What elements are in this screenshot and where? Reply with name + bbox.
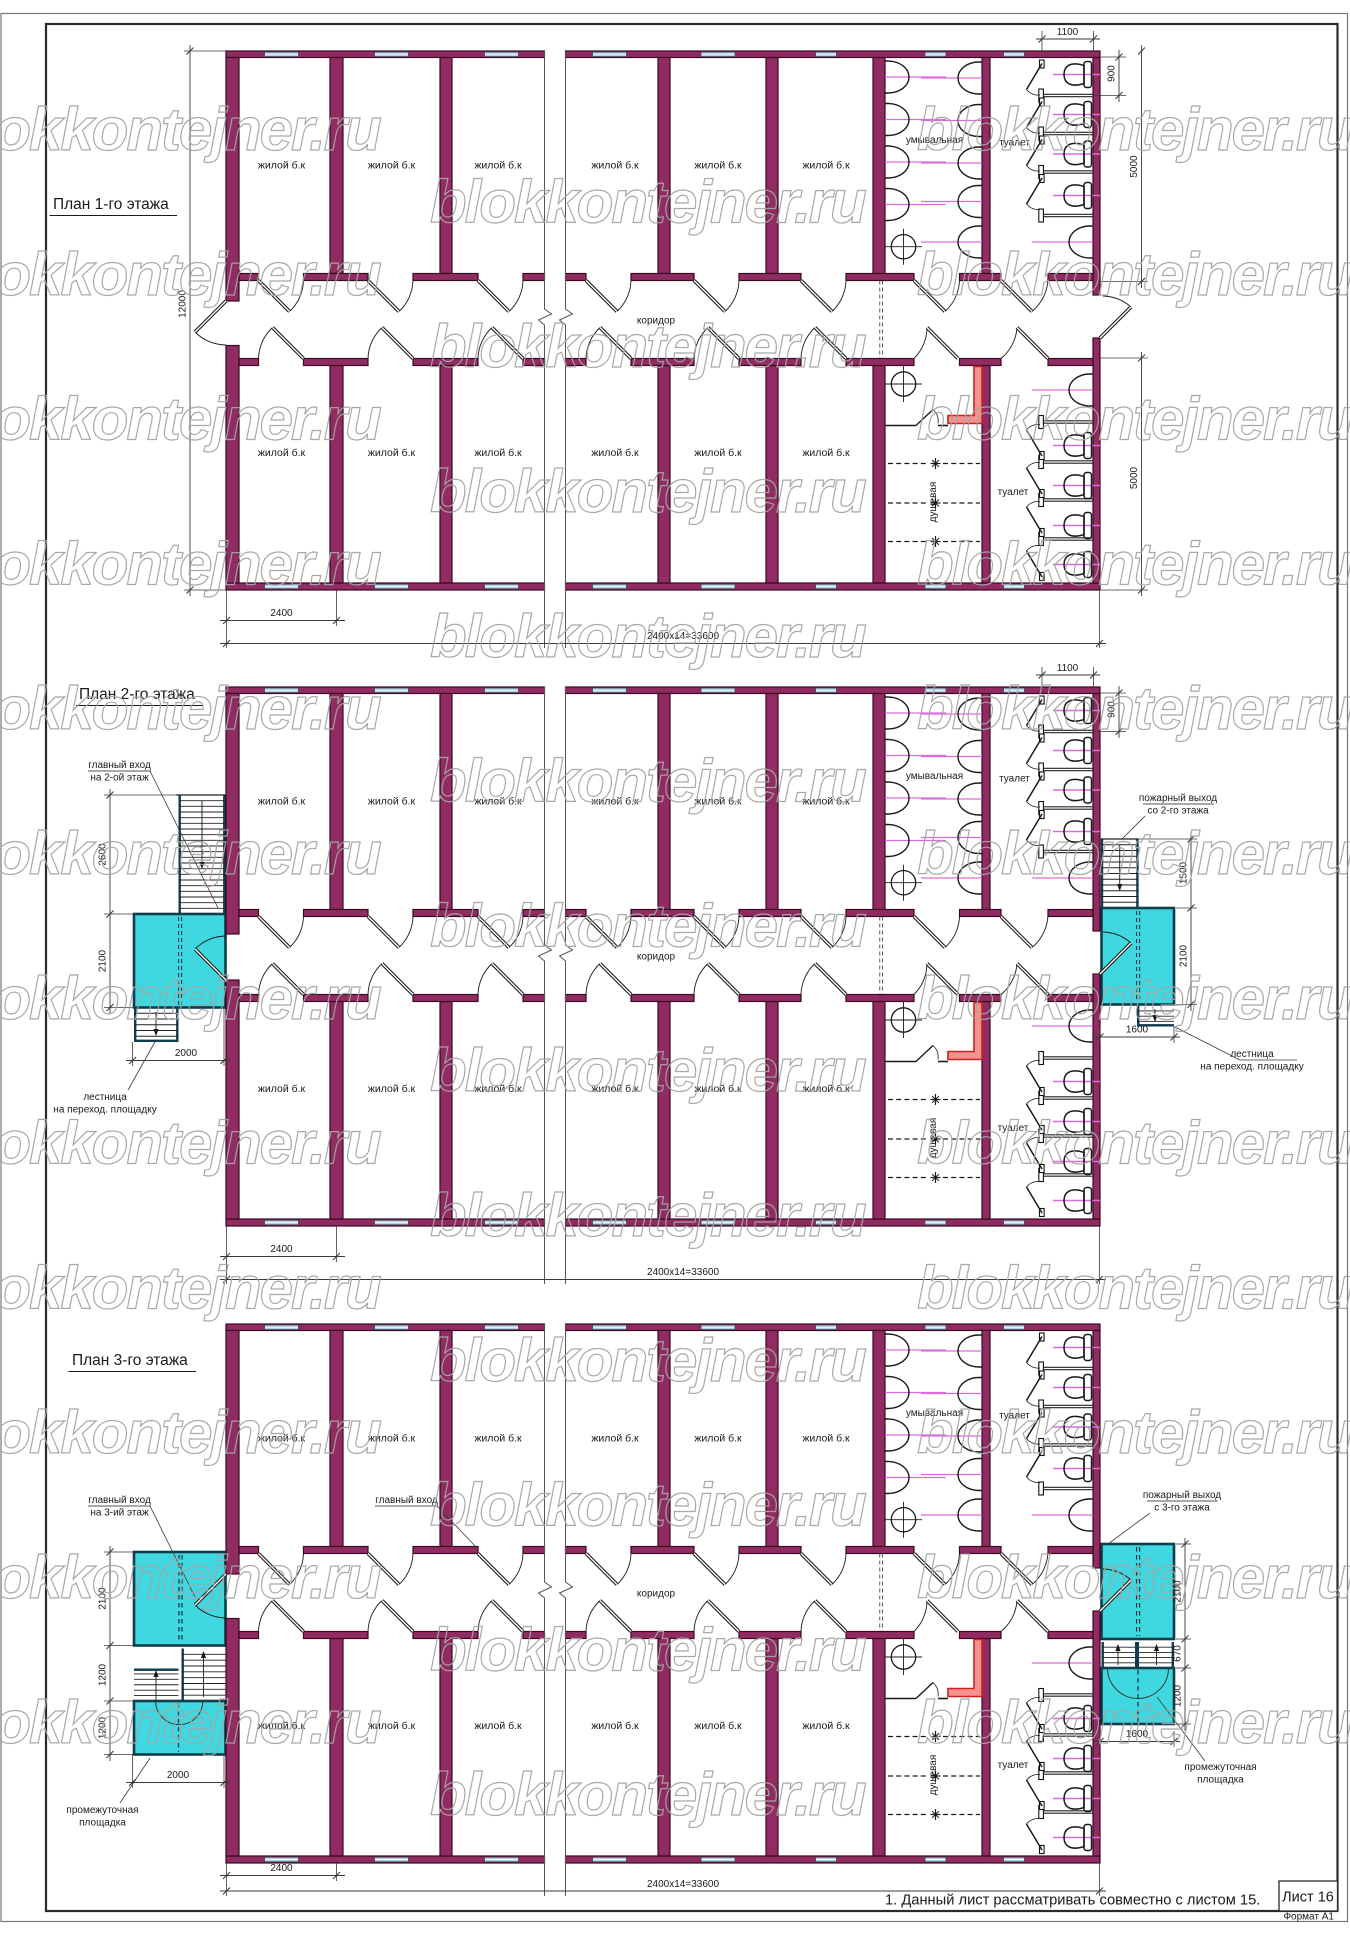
svg-text:blokkontejner.ru: blokkontejner.ru: [430, 1182, 866, 1249]
svg-text:1200: 1200: [98, 1663, 109, 1686]
svg-text:жилой б.к: жилой б.к: [474, 1433, 522, 1445]
svg-text:blokkontejner.ru: blokkontejner.ru: [430, 313, 866, 380]
svg-text:blokkontejner.ru: blokkontejner.ru: [430, 892, 866, 959]
svg-text:площадка: площадка: [1197, 1775, 1244, 1786]
svg-text:5000: 5000: [1129, 466, 1140, 489]
svg-text:жилой б.к: жилой б.к: [591, 1433, 639, 1445]
svg-text:blokkontejner.ru: blokkontejner.ru: [0, 965, 381, 1032]
svg-text:промежуточная: промежуточная: [66, 1805, 138, 1816]
svg-text:жилой б.к: жилой б.к: [694, 1433, 742, 1445]
svg-text:План 3-го этажа: План 3-го этажа: [72, 1352, 188, 1369]
svg-text:670: 670: [1173, 1645, 1184, 1662]
svg-text:жилой б.к: жилой б.к: [694, 1720, 742, 1732]
svg-text:900: 900: [1107, 65, 1118, 82]
svg-text:на переход. площадку: на переход. площадку: [1200, 1062, 1303, 1073]
svg-text:пожарный выход: пожарный выход: [1139, 793, 1217, 804]
svg-text:2400: 2400: [270, 1244, 293, 1255]
svg-text:1100: 1100: [1057, 663, 1079, 674]
svg-text:с 3-го этажа: с 3-го этажа: [1154, 1503, 1210, 1514]
svg-text:2100: 2100: [1179, 944, 1190, 967]
svg-text:blokkontejner.ru: blokkontejner.ru: [917, 530, 1350, 597]
svg-text:Лист 16: Лист 16: [1282, 1890, 1334, 1906]
svg-text:2400х14=33600: 2400х14=33600: [647, 1879, 719, 1890]
svg-text:blokkontejner.ru: blokkontejner.ru: [917, 965, 1350, 1032]
svg-text:туалет: туалет: [998, 1760, 1029, 1771]
svg-text:blokkontejner.ru: blokkontejner.ru: [430, 1327, 866, 1394]
svg-text:blokkontejner.ru: blokkontejner.ru: [917, 1110, 1350, 1177]
svg-text:2400: 2400: [270, 608, 293, 619]
svg-text:пожарный выход: пожарный выход: [1143, 1490, 1221, 1501]
svg-text:главный вход: главный вход: [88, 1495, 151, 1506]
svg-text:blokkontejner.ru: blokkontejner.ru: [430, 748, 866, 815]
svg-text:План 1-го этажа: План 1-го этажа: [53, 196, 169, 213]
svg-text:2000: 2000: [167, 1770, 190, 1781]
svg-text:1. Данный лист рассматривать с: 1. Данный лист рассматривать совместно с…: [885, 1893, 1260, 1909]
svg-text:blokkontejner.ru: blokkontejner.ru: [0, 820, 381, 887]
svg-text:blokkontejner.ru: blokkontejner.ru: [0, 1399, 381, 1466]
svg-text:лестница: лестница: [83, 1092, 127, 1103]
svg-text:blokkontejner.ru: blokkontejner.ru: [917, 96, 1350, 163]
svg-text:blokkontejner.ru: blokkontejner.ru: [0, 675, 381, 742]
svg-text:жилой б.к: жилой б.к: [258, 1083, 306, 1095]
svg-text:blokkontejner.ru: blokkontejner.ru: [917, 1544, 1350, 1611]
svg-text:blokkontejner.ru: blokkontejner.ru: [917, 1254, 1350, 1321]
svg-text:на 3-ий этаж: на 3-ий этаж: [90, 1508, 149, 1519]
svg-text:жилой б.к: жилой б.к: [802, 1720, 850, 1732]
svg-text:1100: 1100: [1057, 27, 1079, 38]
svg-text:blokkontejner.ru: blokkontejner.ru: [0, 1110, 381, 1177]
svg-text:blokkontejner.ru: blokkontejner.ru: [430, 458, 866, 525]
svg-text:главный вход: главный вход: [375, 1495, 438, 1506]
svg-text:жилой б.к: жилой б.к: [474, 1720, 522, 1732]
svg-text:blokkontejner.ru: blokkontejner.ru: [0, 1544, 381, 1611]
svg-text:жилой б.к: жилой б.к: [368, 1083, 416, 1095]
svg-text:blokkontejner.ru: blokkontejner.ru: [0, 96, 381, 163]
svg-text:blokkontejner.ru: blokkontejner.ru: [917, 1399, 1350, 1466]
svg-text:blokkontejner.ru: blokkontejner.ru: [0, 241, 381, 308]
svg-text:blokkontejner.ru: blokkontejner.ru: [430, 1472, 866, 1539]
svg-text:умывальная: умывальная: [906, 771, 963, 782]
svg-text:2400х14=33600: 2400х14=33600: [647, 1267, 719, 1278]
svg-text:туалет: туалет: [998, 487, 1029, 498]
svg-text:жилой б.к: жилой б.к: [368, 796, 416, 808]
svg-text:blokkontejner.ru: blokkontejner.ru: [430, 1037, 866, 1104]
svg-text:со 2-го этажа: со 2-го этажа: [1147, 806, 1209, 817]
svg-text:главный вход: главный вход: [88, 760, 151, 771]
svg-text:жилой б.к: жилой б.к: [802, 1433, 850, 1445]
svg-text:blokkontejner.ru: blokkontejner.ru: [0, 530, 381, 597]
svg-text:жилой б.к: жилой б.к: [591, 1720, 639, 1732]
svg-text:коридор: коридор: [637, 1589, 676, 1600]
svg-text:Формат А1: Формат А1: [1283, 1912, 1334, 1923]
svg-text:душевая: душевая: [928, 482, 939, 523]
svg-text:жилой б.к: жилой б.к: [258, 796, 306, 808]
svg-text:blokkontejner.ru: blokkontejner.ru: [917, 386, 1350, 453]
svg-text:blokkontejner.ru: blokkontejner.ru: [0, 1254, 381, 1321]
svg-text:blokkontejner.ru: blokkontejner.ru: [430, 1761, 866, 1828]
svg-text:blokkontejner.ru: blokkontejner.ru: [0, 386, 381, 453]
svg-text:blokkontejner.ru: blokkontejner.ru: [430, 603, 866, 670]
svg-text:blokkontejner.ru: blokkontejner.ru: [430, 168, 866, 235]
svg-text:blokkontejner.ru: blokkontejner.ru: [917, 1689, 1350, 1756]
svg-text:blokkontejner.ru: blokkontejner.ru: [917, 820, 1350, 887]
svg-text:blokkontejner.ru: blokkontejner.ru: [0, 1689, 381, 1756]
svg-text:душевая: душевая: [928, 1755, 939, 1796]
svg-text:туалет: туалет: [999, 774, 1030, 785]
svg-text:на 2-ой этаж: на 2-ой этаж: [90, 773, 149, 784]
svg-text:площадка: площадка: [79, 1818, 126, 1829]
svg-text:2000: 2000: [175, 1048, 198, 1059]
svg-text:промежуточная: промежуточная: [1184, 1762, 1256, 1773]
svg-text:blokkontejner.ru: blokkontejner.ru: [917, 675, 1350, 742]
svg-text:blokkontejner.ru: blokkontejner.ru: [917, 241, 1350, 308]
svg-text:blokkontejner.ru: blokkontejner.ru: [430, 1616, 866, 1683]
svg-text:2400: 2400: [270, 1863, 293, 1874]
